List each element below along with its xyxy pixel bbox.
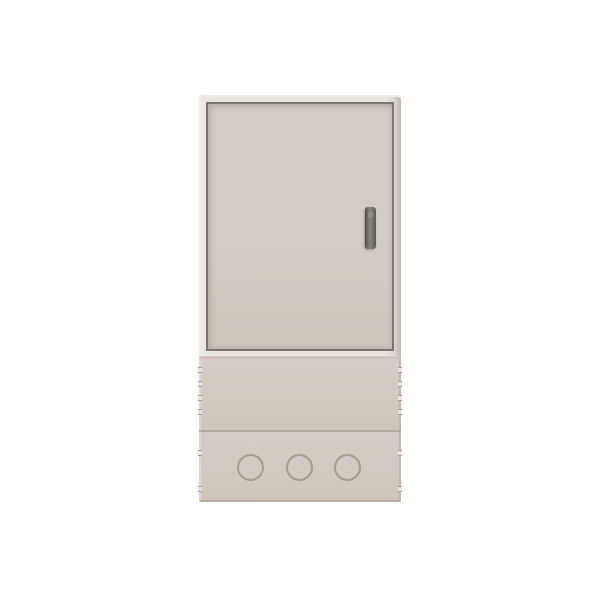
door-frame	[199, 95, 401, 357]
vent-notch	[198, 381, 202, 387]
vent-notch	[198, 367, 202, 373]
base-upper-band	[199, 357, 401, 431]
vent-notch	[398, 367, 402, 373]
vent-notch	[198, 409, 202, 415]
vent-notch	[398, 486, 402, 492]
cable-knockout-circle	[286, 454, 313, 481]
vent-notch	[398, 450, 402, 456]
door-handle	[365, 207, 376, 249]
vent-notch	[398, 381, 402, 387]
vent-notch	[198, 450, 202, 456]
distribution-cabinet	[199, 95, 401, 502]
cable-knockout-circle	[334, 454, 361, 481]
vent-notch	[198, 486, 202, 492]
handle-lock-icon	[368, 212, 373, 218]
vent-notch	[198, 395, 202, 401]
cable-knockout-circle	[237, 454, 264, 481]
product-image-background	[0, 0, 600, 600]
vent-notch	[398, 409, 402, 415]
vent-notch	[398, 395, 402, 401]
base-lower-band	[199, 430, 401, 502]
